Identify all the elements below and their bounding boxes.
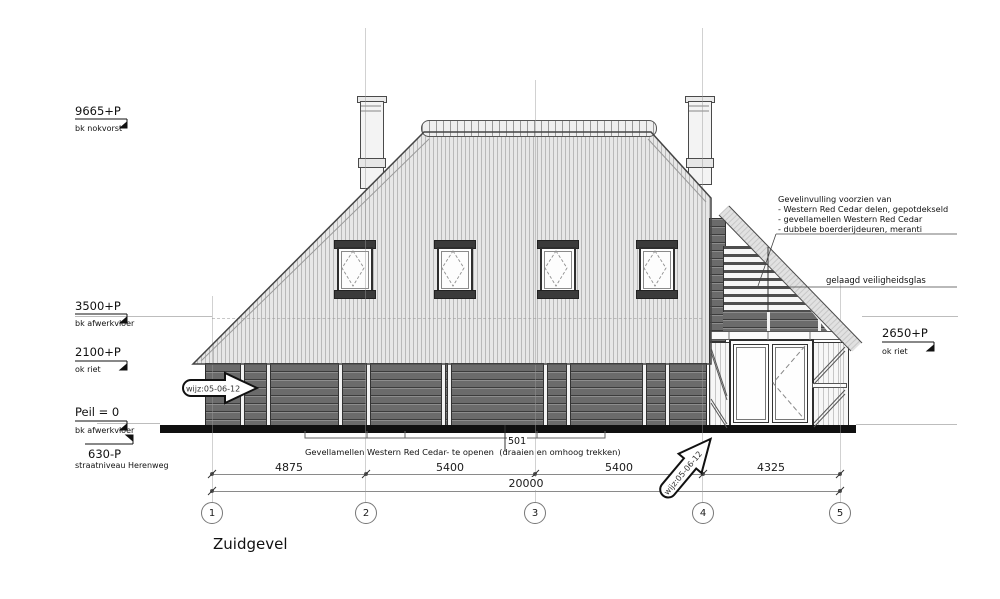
annotation-line: - Western Red Cedar delen, gepotdekseld [778,204,948,214]
roof-window [437,247,473,293]
left-chimney-band [361,105,381,107]
grid-bubble-1: 1 [201,502,223,524]
wall-post [447,363,452,425]
grid-bubble-5: 5 [829,502,851,524]
grid-bubble-2: 2 [355,502,377,524]
barn-doors [729,339,814,429]
gable-louvres [723,246,821,312]
wall-post [366,363,371,425]
tag-501: 501 [507,436,527,447]
grid-line-4 [702,28,703,502]
roof-window-sill [537,290,579,299]
right-chimney-band [689,105,709,107]
glass-label: gelaagd veiligheidsglas [826,276,926,286]
annotation-line: - gevellamellen Western Red Cedar [778,214,948,224]
level-value-thatch-right: 2650+P [882,326,928,340]
level-sub-floor: bk afwerkvloer [75,319,134,328]
level-line-3500-dashed [212,318,702,319]
wall-post [338,363,343,425]
level-value-floor: 3500+P [75,299,121,313]
ridge-cap [421,120,657,137]
wall-post [240,363,245,425]
revision-arrow-stamp-right: wijz:05-06-12 [652,429,723,505]
wall-post [665,363,670,425]
grid-line-2 [365,28,366,502]
level-line-peil-right [856,424,957,425]
wall-post [266,363,271,425]
wall-post [566,363,571,425]
level-value-thatch-left: 2100+P [75,345,121,359]
level-value-ridge: 9665+P [75,104,121,118]
level-sub-thatch-right: ok riet [882,347,908,356]
right-chimney [688,101,712,185]
wall-post [543,363,548,425]
left-chimney-band [361,110,381,112]
level-value-peil: Peil = 0 [75,405,119,419]
grid-line-3 [535,80,536,502]
roof-window-sill [434,290,476,299]
wall-post [441,363,446,425]
dim-bay-4: 4325 [757,461,785,474]
dimension-line-bays [212,474,840,475]
facade-annotation-block: Gevelinvulling voorzien van - Western Re… [778,194,948,234]
grid-line-1 [212,296,213,502]
grid-bubble-3: 3 [524,502,546,524]
wall-post [642,363,647,425]
ground-beam [160,425,856,433]
dim-total: 20000 [507,477,546,490]
braced-panel-left [709,342,730,427]
level-sub-street: straatniveau Herenweg [75,461,169,470]
right-chimney-band [689,110,709,112]
dimension-line-total [212,491,840,492]
grid-bubble-4: 4 [692,502,714,524]
door-leaf-left [733,344,769,423]
right-chimney-collar [686,158,714,168]
drawing-title: Zuidgevel [213,535,288,553]
level-line-3500-left [75,316,212,317]
door-leaf-right [772,344,808,423]
annotation-line: Gevelinvulling voorzien van [778,194,948,204]
level-line-peil-left [97,423,160,424]
left-chimney-collar [358,158,386,168]
level-sub-thatch-left: ok riet [75,365,101,374]
annotation-line: - dubbele boerderijdeuren, meranti [778,224,948,234]
cedar-clad-wall [205,363,707,427]
level-sub-ridge: bk nokvorst [75,124,122,133]
dim-bay-2: 5400 [436,461,464,474]
lamellen-note: Gevellamellen Western Red Cedar- te open… [305,447,615,457]
level-value-street: 630-P [88,447,121,461]
roof-window [639,247,675,293]
grid-line-5 [840,282,841,502]
panel-rail [812,383,847,388]
elevation-drawing-canvas: wijz:05-06-12 wijz:05-06-12 9665+P bk no… [0,0,1000,599]
roof-window [540,247,576,293]
dim-bay-3: 5400 [605,461,633,474]
level-sub-peil: bk afwerkvloer [75,426,134,435]
dim-bay-1: 4875 [275,461,303,474]
roof-window [337,247,373,293]
roof-window-sill [334,290,376,299]
roof-window-sill [636,290,678,299]
level-line-3500-right [862,316,958,317]
